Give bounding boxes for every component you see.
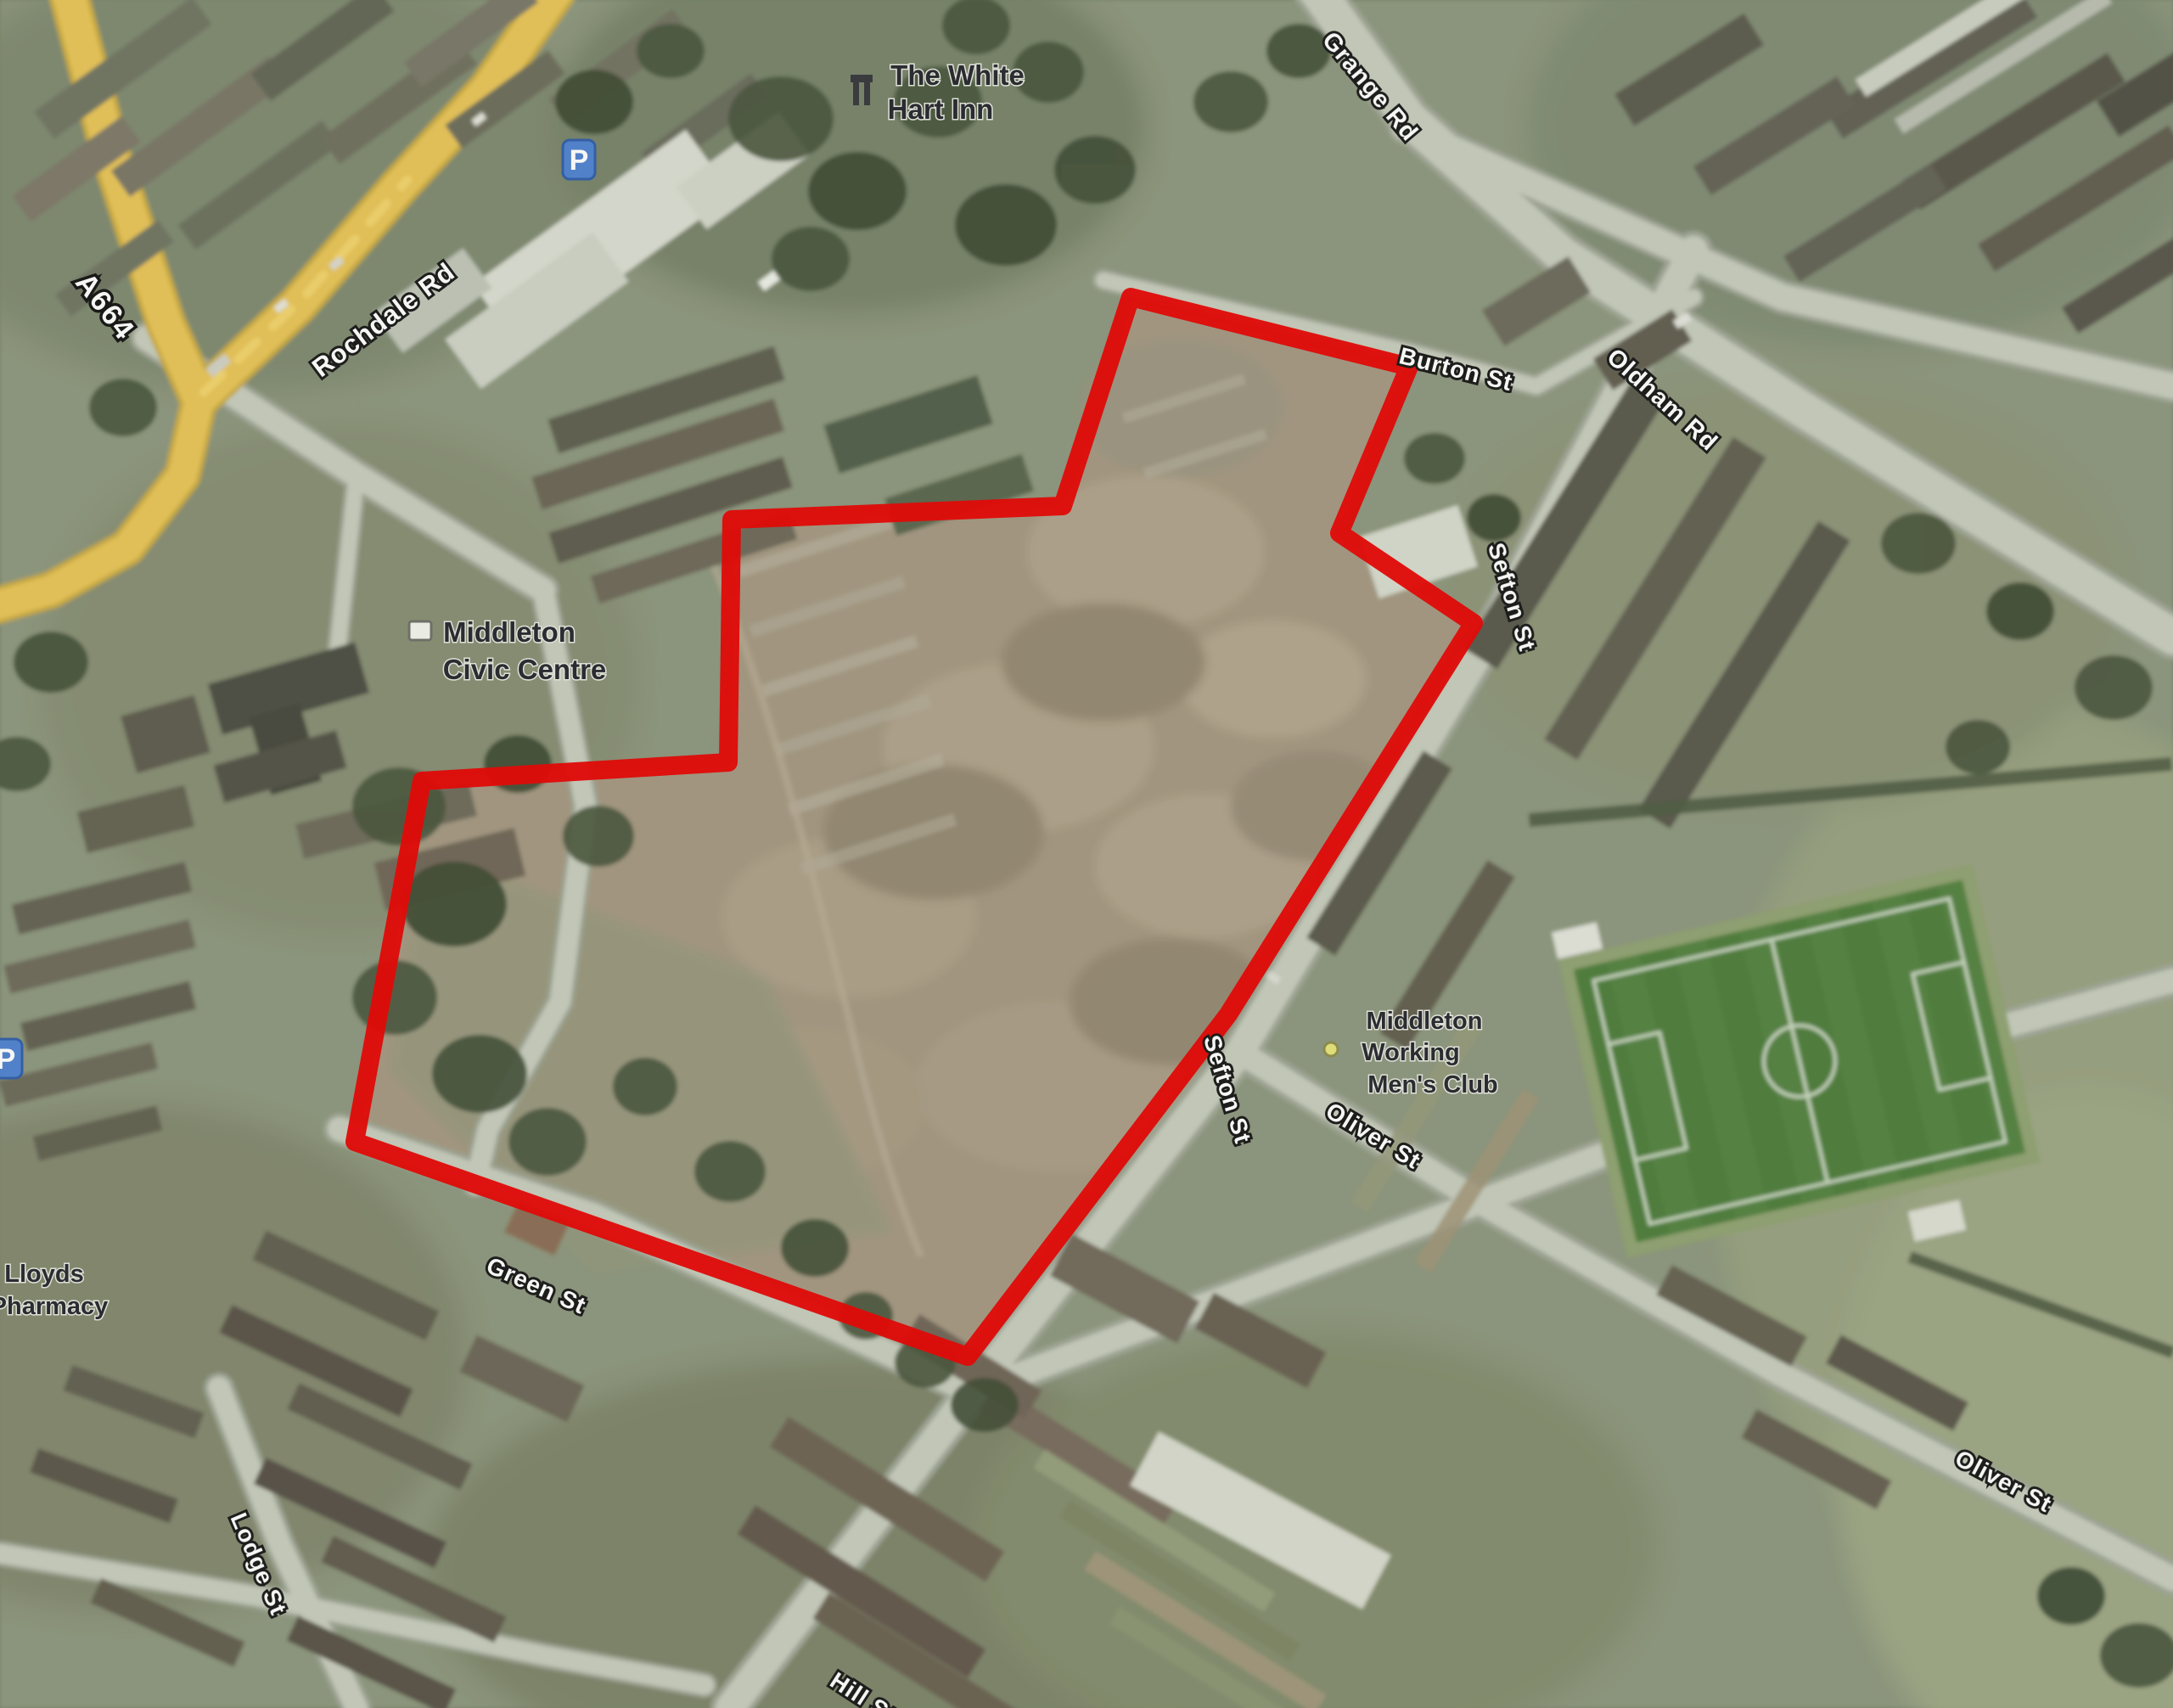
aerial-map-view[interactable]: A664 Rochdale Rd Grange Rd Burton St Old… <box>0 0 2173 1708</box>
haze-overlay <box>0 0 2173 1708</box>
